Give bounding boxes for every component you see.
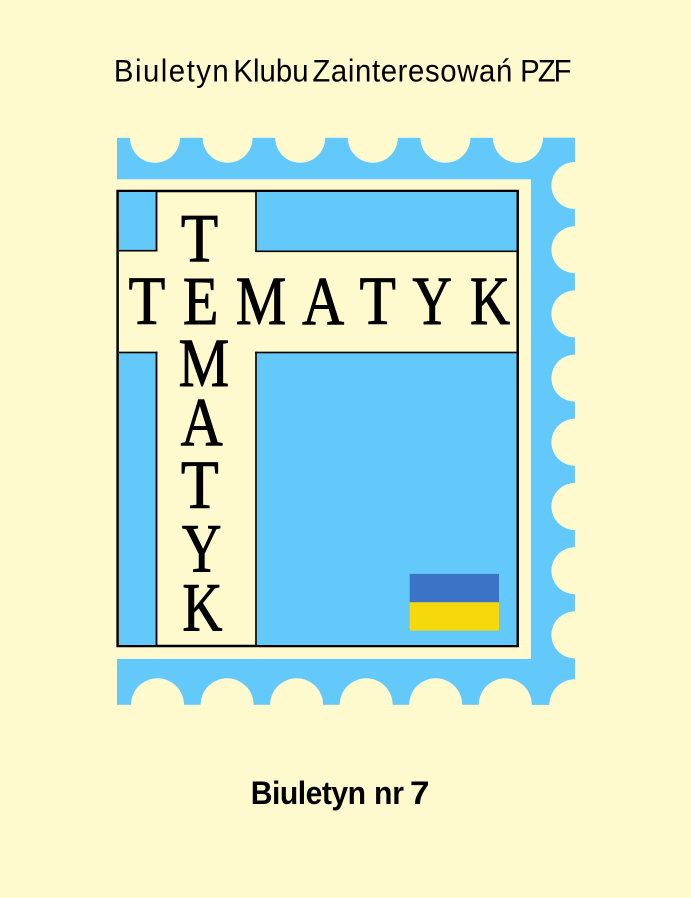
svg-text:K: K xyxy=(470,264,510,340)
svg-text:nr: nr xyxy=(374,775,404,811)
svg-text:Klubu: Klubu xyxy=(233,53,308,88)
svg-text:K: K xyxy=(182,570,222,646)
svg-text:PZF: PZF xyxy=(520,53,572,88)
svg-text:T: T xyxy=(128,264,165,339)
svg-text:Biuletyn: Biuletyn xyxy=(251,775,366,811)
svg-text:T: T xyxy=(359,263,395,339)
svg-text:Y: Y xyxy=(412,265,452,340)
svg-text:7: 7 xyxy=(410,775,430,811)
svg-text:M: M xyxy=(236,263,287,339)
svg-text:Biuletyn: Biuletyn xyxy=(114,53,229,88)
svg-text:A: A xyxy=(302,263,344,340)
svg-text:T: T xyxy=(181,201,218,277)
svg-text:Zainteresowań: Zainteresowań xyxy=(312,53,512,88)
